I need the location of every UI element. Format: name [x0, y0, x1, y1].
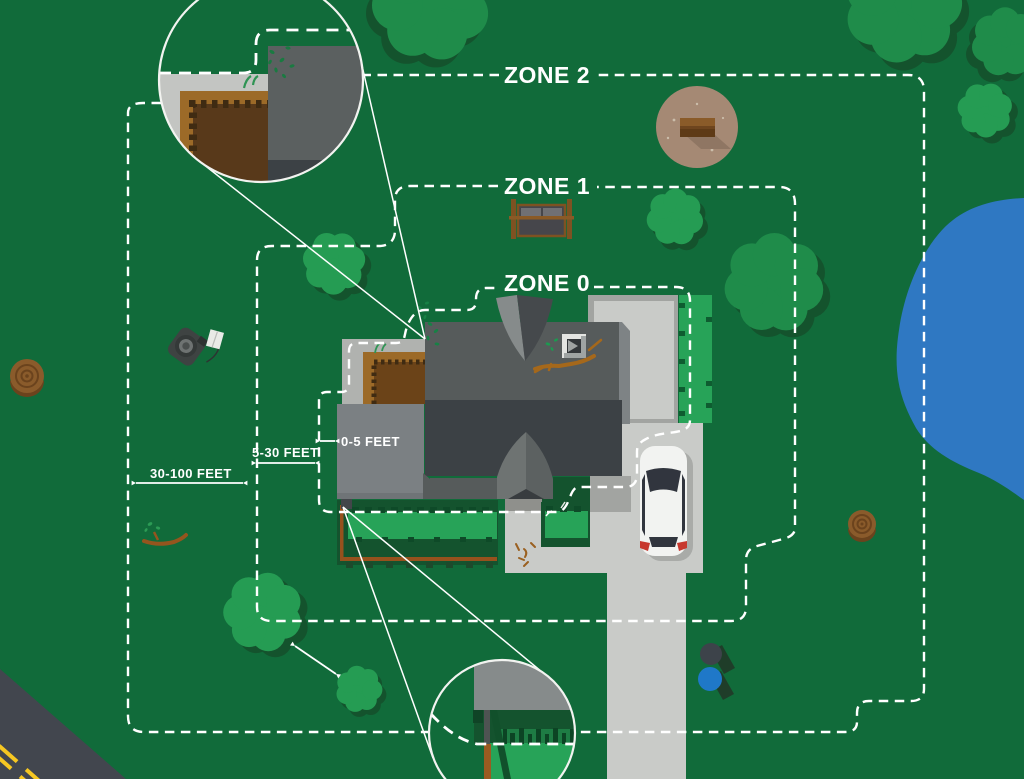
svg-text:30-100 FEET: 30-100 FEET — [150, 466, 232, 481]
svg-text:ZONE 1: ZONE 1 — [504, 173, 590, 199]
svg-text:ZONE 0: ZONE 0 — [504, 270, 590, 296]
svg-text:ZONE 2: ZONE 2 — [504, 62, 590, 88]
svg-text:0-5 FEET: 0-5 FEET — [341, 434, 400, 449]
svg-text:5-30 FEET: 5-30 FEET — [252, 445, 318, 460]
